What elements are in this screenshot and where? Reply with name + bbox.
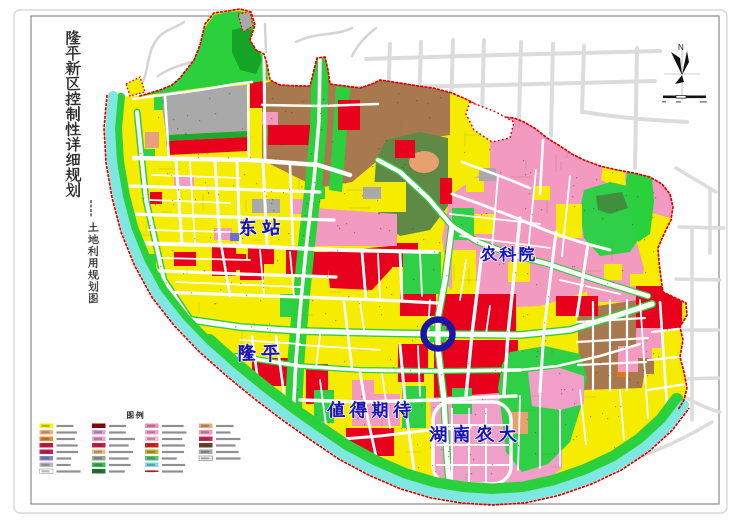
svg-text:N: N	[678, 43, 684, 52]
